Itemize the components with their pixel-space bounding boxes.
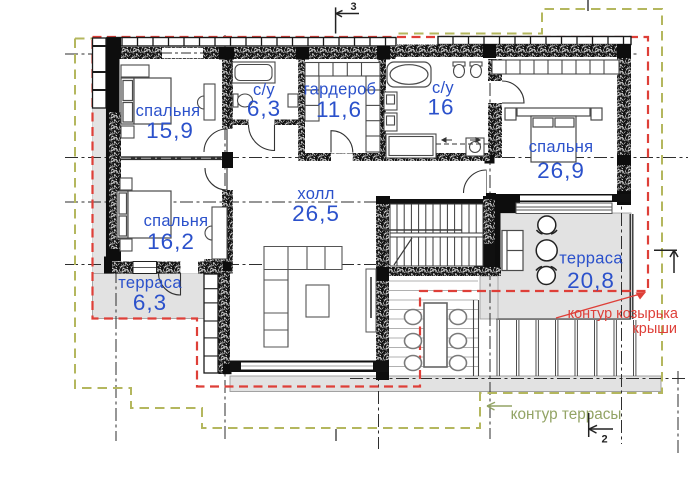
svg-text:крыши: крыши [632,321,677,337]
svg-text:26,5: 26,5 [292,201,340,226]
svg-text:16,2: 16,2 [147,229,195,254]
svg-text:2: 2 [602,434,608,446]
svg-text:15,9: 15,9 [146,118,194,143]
svg-text:3: 3 [351,1,357,13]
svg-text:спальня: спальня [144,212,209,230]
svg-text:контур козырька: контур козырька [568,306,679,322]
svg-text:терраса: терраса [559,250,623,268]
svg-text:6,3: 6,3 [247,96,281,121]
svg-text:20,8: 20,8 [567,268,615,293]
svg-text:контур террасы: контур террасы [511,406,622,423]
svg-text:26,9: 26,9 [537,158,585,183]
svg-text:6,3: 6,3 [133,290,167,315]
svg-text:11,6: 11,6 [316,97,362,122]
svg-text:16: 16 [427,95,454,120]
svg-text:спальня: спальня [529,138,594,156]
svg-text:гардероб: гардероб [304,81,377,99]
